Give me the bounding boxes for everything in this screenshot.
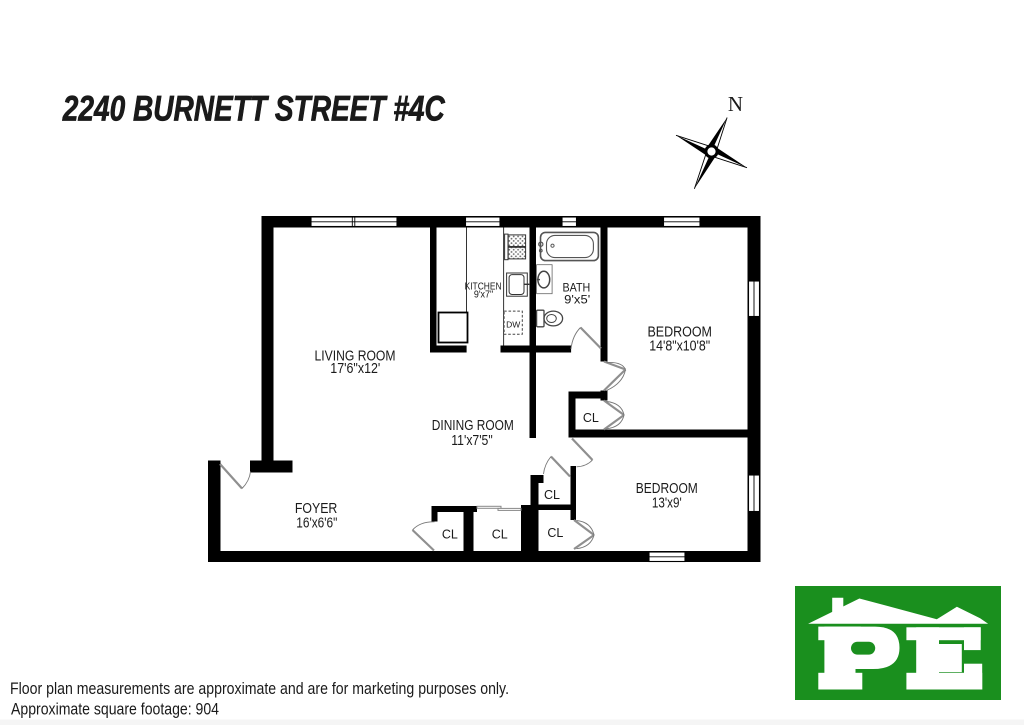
svg-text:16'x6'6": 16'x6'6" <box>296 515 337 531</box>
svg-text:DW: DW <box>506 320 520 330</box>
svg-text:CL: CL <box>547 526 563 540</box>
svg-text:Approximate square footage: 90: Approximate square footage: 904 <box>11 699 219 718</box>
svg-text:9'x5': 9'x5' <box>564 294 590 306</box>
svg-text:CL: CL <box>492 527 508 541</box>
svg-text:CL: CL <box>583 411 599 425</box>
svg-text:11'x7'5": 11'x7'5" <box>451 433 492 449</box>
svg-text:17'6"x12': 17'6"x12' <box>330 361 380 377</box>
svg-text:BATH: BATH <box>563 280 591 294</box>
svg-text:N: N <box>728 92 743 116</box>
svg-text:2240 BURNETT STREET #4C: 2240 BURNETT STREET #4C <box>62 88 446 128</box>
svg-text:9'x7": 9'x7" <box>474 289 494 301</box>
svg-text:13'x9': 13'x9' <box>652 496 682 512</box>
svg-text:DINING ROOM: DINING ROOM <box>432 418 514 434</box>
svg-text:14'8"x10'8": 14'8"x10'8" <box>649 339 710 355</box>
svg-text:CL: CL <box>442 527 458 541</box>
svg-text:Floor plan measurements are ap: Floor plan measurements are approximate … <box>10 679 509 698</box>
svg-text:CL: CL <box>544 488 560 502</box>
